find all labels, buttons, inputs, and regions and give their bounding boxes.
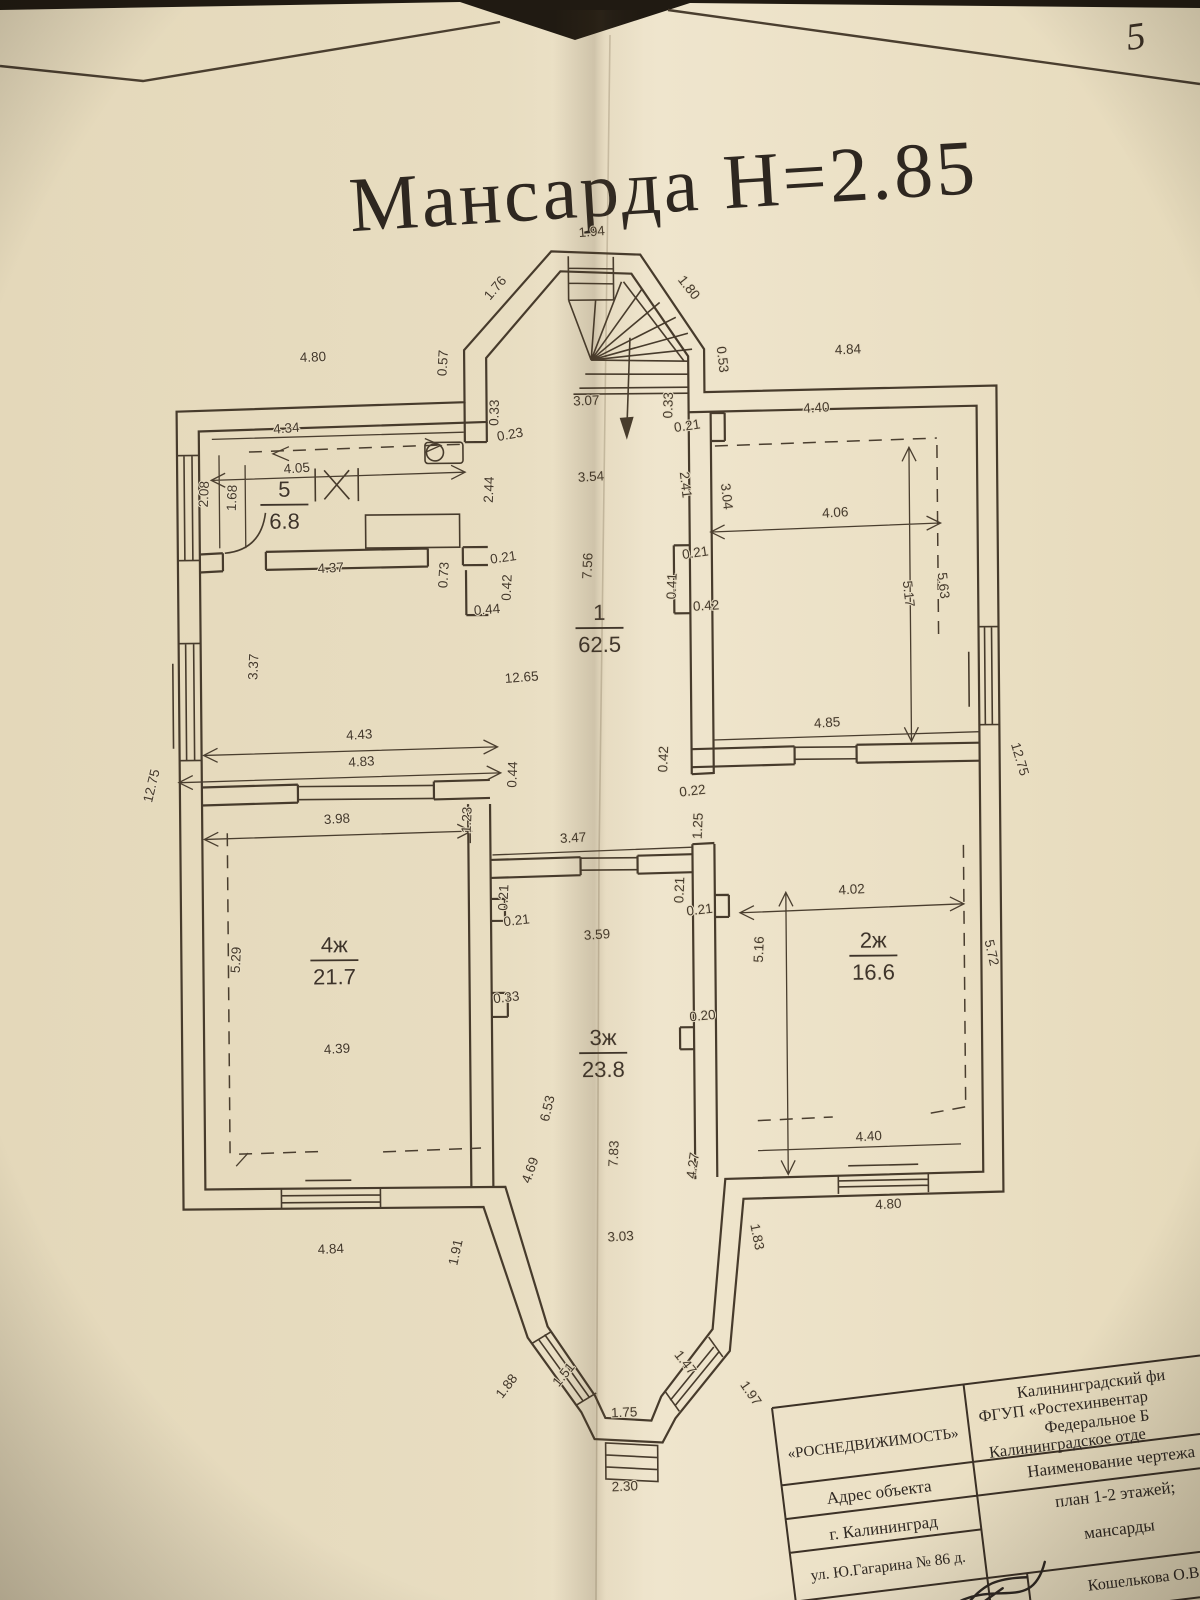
photo-vignette [0, 0, 1200, 1600]
floor-plan-canvas: 5 Мансарда Н=2.85 [0, 0, 1200, 1600]
scanned-floor-plan-photo: 5 Мансарда Н=2.85 [0, 0, 1200, 1600]
